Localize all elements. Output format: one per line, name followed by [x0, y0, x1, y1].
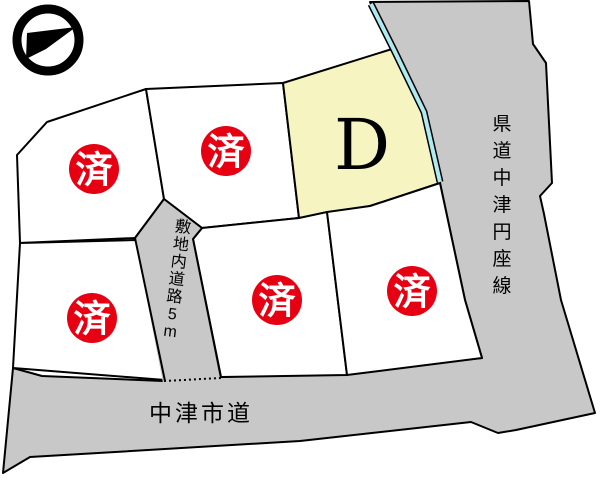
- sold-badge-bottom-middle: 済: [252, 275, 302, 325]
- lot-d-label: D: [334, 104, 390, 186]
- city-road-label: 中津市道: [149, 400, 253, 426]
- prefectural-road-label: 県道中津円座線: [492, 114, 511, 297]
- sold-badge-top-left: 済: [69, 144, 119, 194]
- sold-badge-top-middle: 済: [201, 126, 251, 176]
- sold-badge-text: 済: [394, 272, 432, 313]
- compass-north-icon: [17, 9, 79, 71]
- sold-badge-text: 済: [208, 132, 246, 173]
- sold-badge-text: 済: [74, 299, 112, 340]
- sold-badge-text: 済: [259, 281, 297, 322]
- lot-map-canvas: 県道中津円座線 敷地内道路5m 中津市道 D 済 済 済 済 済: [0, 0, 600, 483]
- sold-badge-bottom-left: 済: [67, 293, 117, 343]
- sold-badge-text: 済: [76, 150, 114, 191]
- site-map-svg: 県道中津円座線 敷地内道路5m 中津市道 D 済 済 済 済 済: [0, 0, 600, 483]
- sold-badge-bottom-right: 済: [387, 266, 437, 316]
